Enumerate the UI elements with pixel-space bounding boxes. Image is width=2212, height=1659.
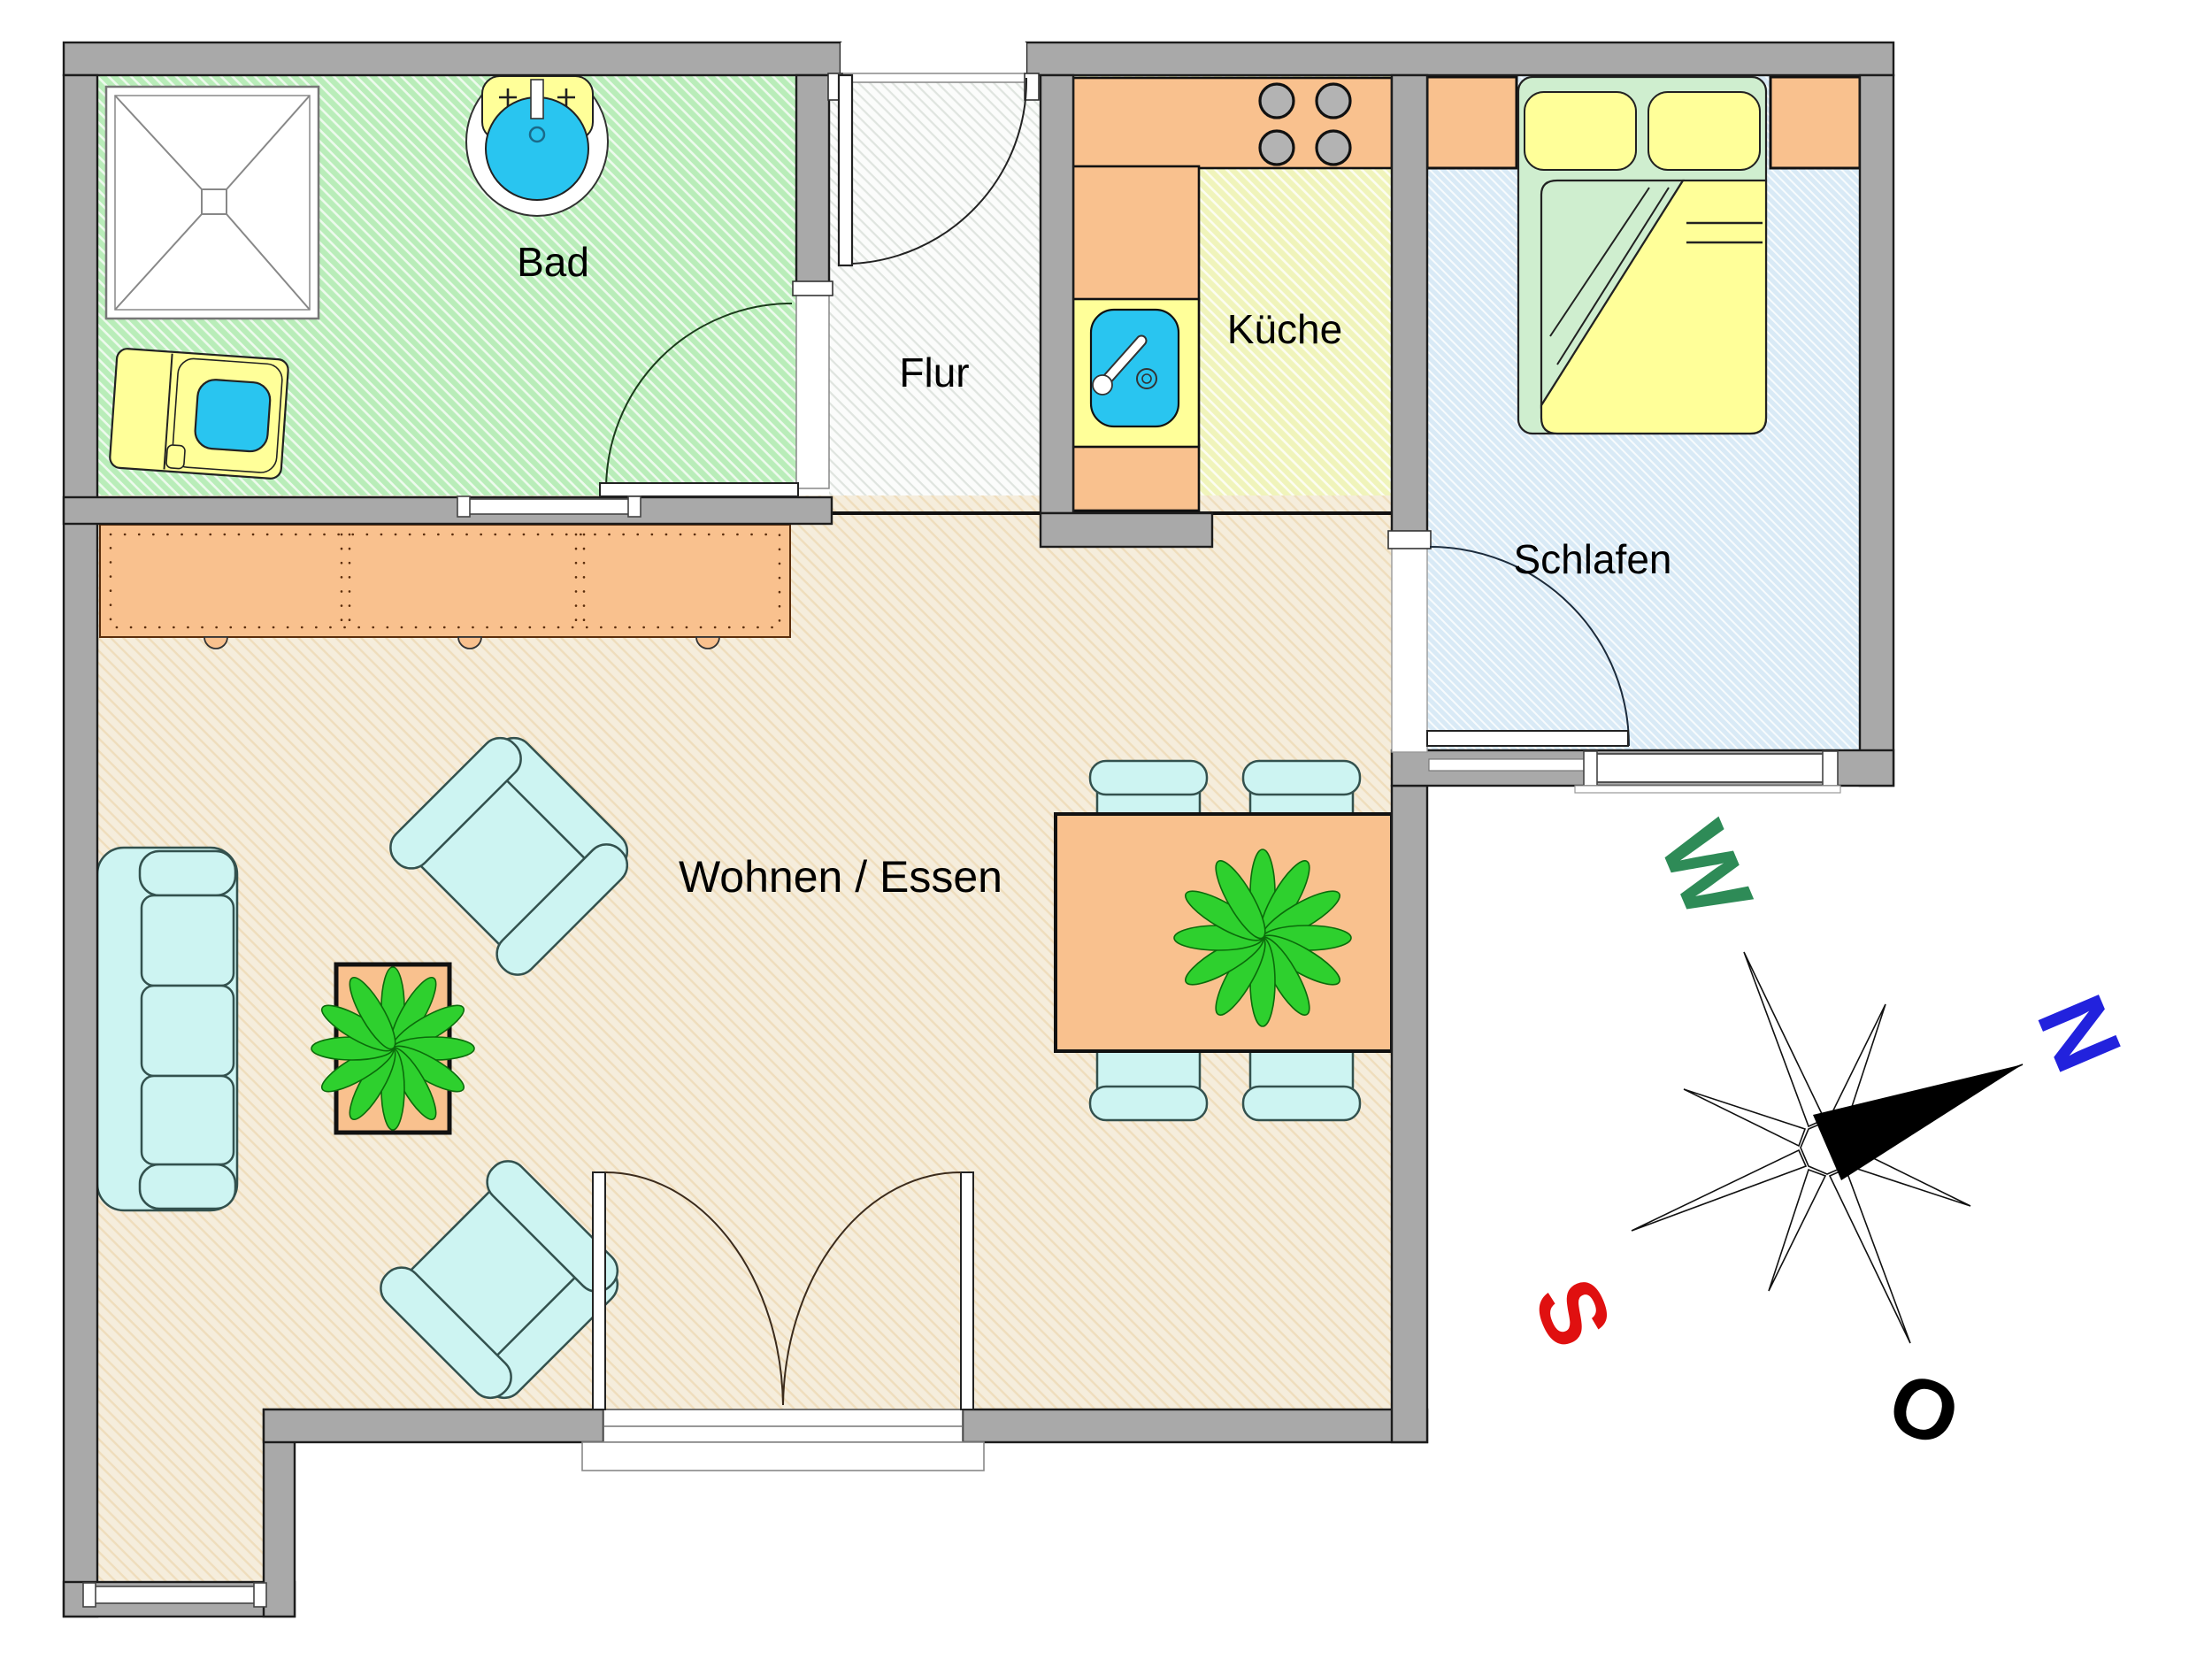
wall-bad-bottom: [64, 497, 832, 524]
pillow: [1525, 92, 1636, 170]
wohnen-window: [83, 1583, 266, 1607]
nightstand-right: [1770, 77, 1860, 168]
door-jamb: [793, 281, 833, 296]
shower: [106, 87, 319, 319]
dining-chair-back: [1090, 761, 1207, 795]
door-leaf: [1427, 731, 1628, 746]
kitchen-sink: [1073, 299, 1199, 447]
washing-machine: [109, 348, 288, 479]
dining-table: [1056, 814, 1392, 1051]
washer-door-icon: [194, 379, 271, 453]
room-label-flur: Flur: [899, 349, 969, 396]
compass-label-w: W: [1640, 808, 1773, 933]
wall-right: [1860, 75, 1893, 786]
nightstand-left: [1427, 77, 1517, 168]
tap-icon: [531, 80, 543, 119]
coffee-table: [311, 964, 474, 1133]
door-leaf: [600, 483, 798, 496]
wall-living-right: [1392, 786, 1427, 1442]
compass-label-s: S: [1513, 1264, 1632, 1361]
compass-label-o: O: [1877, 1354, 1971, 1465]
terrace-step: [582, 1442, 984, 1471]
sideboard: [100, 525, 790, 649]
wall-flur-kueche: [1041, 75, 1073, 513]
floorplan-canvas: N W S O Bad Flur Küche Schlafen Wohnen /…: [0, 0, 2212, 1659]
bad-window: [457, 496, 641, 517]
bathroom-sink: [466, 67, 608, 216]
dining-chair-back: [1090, 1087, 1207, 1120]
wall-bottom-mid-right: [963, 1409, 1427, 1442]
room-label-bad: Bad: [517, 239, 589, 285]
bed: [1518, 77, 1766, 434]
door-leaf: [961, 1172, 973, 1409]
room-label-schlafen: Schlafen: [1513, 536, 1671, 582]
wall-top-right: [1026, 42, 1893, 75]
wall-bad-flur: [796, 75, 829, 292]
door-leaf: [593, 1172, 605, 1409]
compass-needle-icon: [1813, 1064, 2023, 1180]
compass-rose: N W S O: [1513, 808, 2142, 1465]
door-jamb: [1388, 531, 1431, 549]
wall-bottom-mid-left: [264, 1409, 603, 1442]
wall-left: [64, 75, 97, 1617]
wall-kueche-schlafen: [1392, 75, 1427, 547]
sofa: [97, 848, 237, 1210]
pillow: [1648, 92, 1760, 170]
dining-chair-back: [1243, 761, 1360, 795]
wohnen-floor-nook: [97, 1442, 264, 1584]
floorplan-drawing: N W S O Bad Flur Küche Schlafen Wohnen /…: [0, 0, 2212, 1659]
room-label-wohnen: Wohnen / Essen: [679, 852, 1002, 902]
dining-chair-back: [1243, 1087, 1360, 1120]
compass-label-n: N: [2017, 980, 2143, 1086]
room-label-kueche: Küche: [1227, 306, 1342, 352]
wall-stub-kitchen: [1041, 513, 1212, 547]
wall-top-left: [64, 42, 841, 75]
flur-floor: [829, 75, 1041, 513]
door-leaf: [839, 75, 852, 265]
